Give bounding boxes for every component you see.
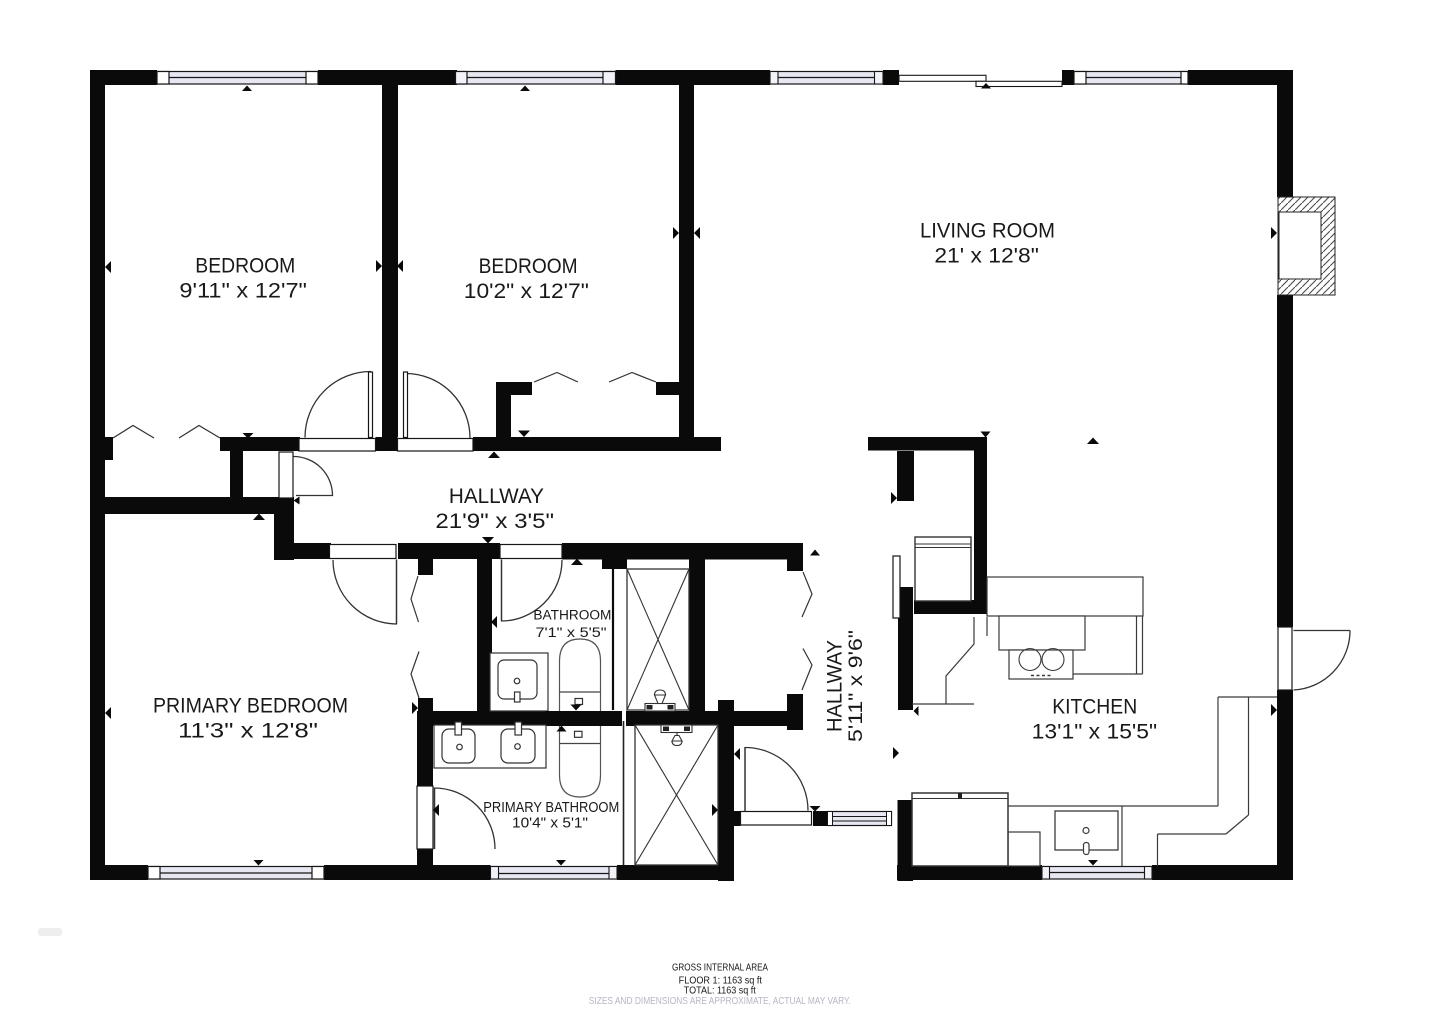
svg-text:PRIMARY BEDROOM: PRIMARY BEDROOM	[153, 695, 348, 718]
svg-text:HALLWAY: HALLWAY	[449, 485, 544, 508]
svg-text:GROSS INTERNAL AREA: GROSS INTERNAL AREA	[672, 963, 768, 974]
svg-text:13'1" x 15'5": 13'1" x 15'5"	[1032, 721, 1158, 744]
svg-text:HALLWAY: HALLWAY	[824, 640, 847, 732]
svg-text:KITCHEN: KITCHEN	[1052, 695, 1137, 718]
svg-text:21'9" x 3'5": 21'9" x 3'5"	[435, 510, 554, 533]
svg-text:BEDROOM: BEDROOM	[195, 255, 295, 278]
svg-text:21' x 12'8": 21' x 12'8"	[934, 245, 1039, 268]
svg-text:10'4" x 5'1": 10'4" x 5'1"	[512, 815, 588, 832]
svg-text:PRIMARY BATHROOM: PRIMARY BATHROOM	[483, 799, 619, 816]
svg-text:SIZES AND DIMENSIONS ARE APPRO: SIZES AND DIMENSIONS ARE APPROXIMATE, AC…	[589, 995, 851, 1007]
svg-text:LIVING ROOM: LIVING ROOM	[920, 220, 1055, 243]
svg-text:BATHROOM: BATHROOM	[533, 608, 611, 623]
svg-text:11'3" x 12'8": 11'3" x 12'8"	[178, 720, 318, 743]
svg-text:7'1" x 5'5": 7'1" x 5'5"	[536, 624, 607, 640]
svg-text:9'11" x 12'7": 9'11" x 12'7"	[179, 280, 307, 303]
svg-text:5'11" x 9'6": 5'11" x 9'6"	[846, 630, 867, 742]
svg-text:BEDROOM: BEDROOM	[479, 255, 578, 278]
svg-text:10'2" x 12'7": 10'2" x 12'7"	[464, 280, 589, 303]
